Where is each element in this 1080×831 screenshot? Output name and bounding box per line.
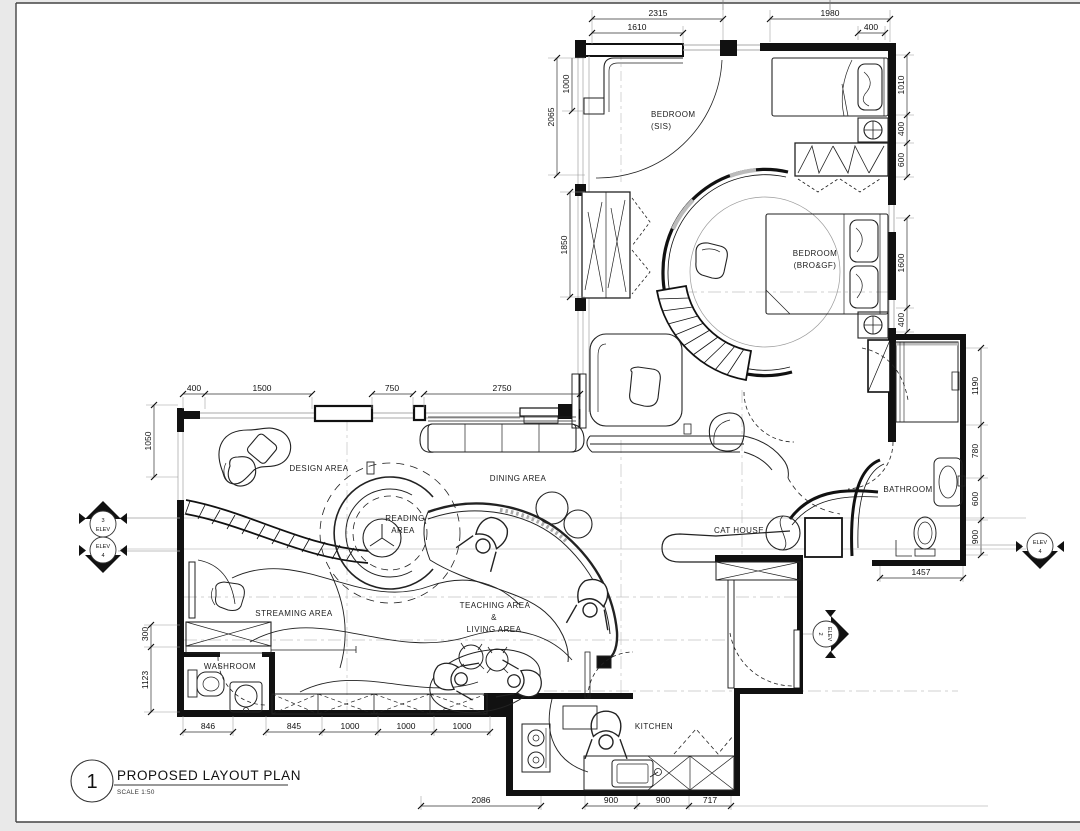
drawing-scale: SCALE 1:50: [117, 789, 155, 796]
dim: 750: [385, 383, 399, 393]
drawing-number: 1: [86, 771, 97, 793]
room-label-dining: DINING AREA: [490, 474, 547, 483]
svg-text:ELEV: ELEV: [826, 627, 832, 642]
room-label-reading2: AREA: [391, 526, 415, 535]
dim: 900: [656, 795, 670, 805]
dim: 2750: [493, 383, 512, 393]
dim: 2086: [472, 795, 491, 805]
dim: 1000: [453, 721, 472, 731]
room-label-cat-house: CAT HOUSE: [714, 526, 764, 535]
svg-text:ELEV: ELEV: [96, 544, 111, 550]
dim: 1010: [896, 75, 906, 94]
dim: 845: [287, 721, 301, 731]
dim: 400: [896, 313, 906, 327]
svg-text:3: 3: [101, 518, 104, 524]
dim: 900: [604, 795, 618, 805]
room-label-bedroom-bro: BEDROOM: [793, 249, 838, 258]
room-label-teaching2: &: [491, 613, 497, 622]
svg-text:2: 2: [817, 632, 823, 635]
room-label-bedroom-sis2: (SIS): [651, 122, 671, 131]
dim: 600: [970, 492, 980, 506]
room-label-kitchen: KITCHEN: [635, 722, 673, 731]
room-label-teaching3: LIVING AREA: [467, 625, 522, 634]
dim: 846: [201, 721, 215, 731]
svg-text:4: 4: [101, 553, 104, 559]
room-label-design: DESIGN AREA: [289, 464, 348, 473]
room-label-washroom: WASHROOM: [204, 662, 256, 671]
dim: 1600: [896, 253, 906, 272]
dim: 300: [140, 627, 150, 641]
dim: 1000: [561, 74, 571, 93]
dim: 1457: [912, 567, 931, 577]
floor-plan-sheet: 2315 1610 1980 400 1010 400 600 1600 400…: [0, 0, 1080, 831]
drawing-title: PROPOSED LAYOUT PLAN: [117, 768, 301, 783]
room-label-streaming: STREAMING AREA: [255, 609, 333, 618]
svg-text:ELEV: ELEV: [1033, 540, 1048, 546]
svg-text:4: 4: [1038, 549, 1041, 555]
dim: 1980: [821, 8, 840, 18]
room-label-reading: READING: [385, 514, 425, 523]
room-label-bedroom-sis: BEDROOM: [651, 110, 696, 119]
dim: 900: [970, 530, 980, 544]
dim: 1050: [143, 431, 153, 450]
dim: 400: [896, 122, 906, 136]
dim: 1000: [397, 721, 416, 731]
dim: 400: [864, 22, 878, 32]
dim: 1123: [140, 671, 150, 690]
dim: 717: [703, 795, 717, 805]
dim: 1500: [253, 383, 272, 393]
svg-text:ELEV: ELEV: [96, 527, 111, 533]
dim: 1190: [970, 377, 980, 396]
room-label-bedroom-bro2: (BRO&GF): [794, 261, 837, 270]
dim: 2315: [649, 8, 668, 18]
dim: 1610: [628, 22, 647, 32]
dim: 1850: [559, 235, 569, 254]
room-label-bathroom: BATHROOM: [883, 485, 932, 494]
dim: 780: [970, 444, 980, 458]
dim: 1000: [341, 721, 360, 731]
room-label-teaching: TEACHING AREA: [460, 601, 531, 610]
dim: 2065: [546, 107, 556, 126]
dim: 600: [896, 153, 906, 167]
dim: 400: [187, 383, 201, 393]
